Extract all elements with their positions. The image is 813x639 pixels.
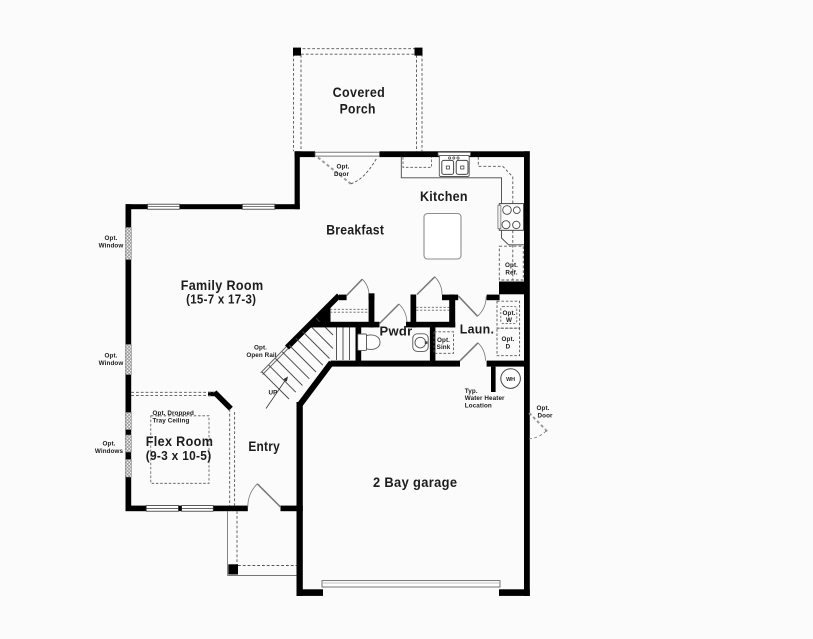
svg-text:Door: Door <box>334 171 350 178</box>
svg-text:(9-3 x 10-5): (9-3 x 10-5) <box>146 449 212 463</box>
svg-text:Opt.: Opt. <box>502 336 515 343</box>
svg-text:(15-7 x 17-3): (15-7 x 17-3) <box>186 293 256 307</box>
svg-text:Opt.: Opt. <box>337 164 350 171</box>
svg-text:Opt.: Opt. <box>437 337 450 344</box>
svg-text:D: D <box>506 344 511 351</box>
svg-text:Opt. Dropped: Opt. Dropped <box>153 410 194 417</box>
svg-text:Sink: Sink <box>437 344 451 351</box>
svg-text:Window: Window <box>99 243 124 250</box>
svg-text:Water Heater: Water Heater <box>465 395 505 402</box>
svg-text:Ref.: Ref. <box>505 270 517 277</box>
svg-text:Opt.: Opt. <box>537 405 550 412</box>
svg-text:WH: WH <box>506 377 515 383</box>
svg-text:Location: Location <box>465 402 492 409</box>
svg-text:W: W <box>506 317 512 324</box>
svg-text:Tray Ceiling: Tray Ceiling <box>153 417 190 424</box>
svg-text:Family Room: Family Room <box>181 277 264 293</box>
svg-text:Breakfast: Breakfast <box>326 222 384 237</box>
svg-text:Window: Window <box>99 360 124 367</box>
svg-text:Door: Door <box>538 413 554 420</box>
svg-text:Open Rail: Open Rail <box>246 352 276 359</box>
svg-text:Opt.: Opt. <box>105 353 118 360</box>
svg-text:Opt.: Opt. <box>254 345 267 352</box>
svg-text:Opt.: Opt. <box>103 441 116 448</box>
svg-text:Porch: Porch <box>340 101 376 117</box>
svg-text:UP: UP <box>269 390 278 397</box>
svg-text:Windows: Windows <box>95 448 124 455</box>
svg-text:Pwdr: Pwdr <box>380 325 413 339</box>
svg-text:Flex Room: Flex Room <box>146 433 214 449</box>
svg-text:Typ.: Typ. <box>465 388 478 395</box>
svg-text:2 Bay garage: 2 Bay garage <box>373 474 458 490</box>
svg-text:Opt.: Opt. <box>105 235 118 242</box>
svg-text:Opt.: Opt. <box>505 262 518 269</box>
svg-text:Entry: Entry <box>248 439 280 454</box>
svg-text:Opt.: Opt. <box>503 310 516 317</box>
svg-text:Kitchen: Kitchen <box>420 189 468 204</box>
svg-text:Covered: Covered <box>333 84 386 100</box>
svg-text:Laun.: Laun. <box>460 323 495 337</box>
